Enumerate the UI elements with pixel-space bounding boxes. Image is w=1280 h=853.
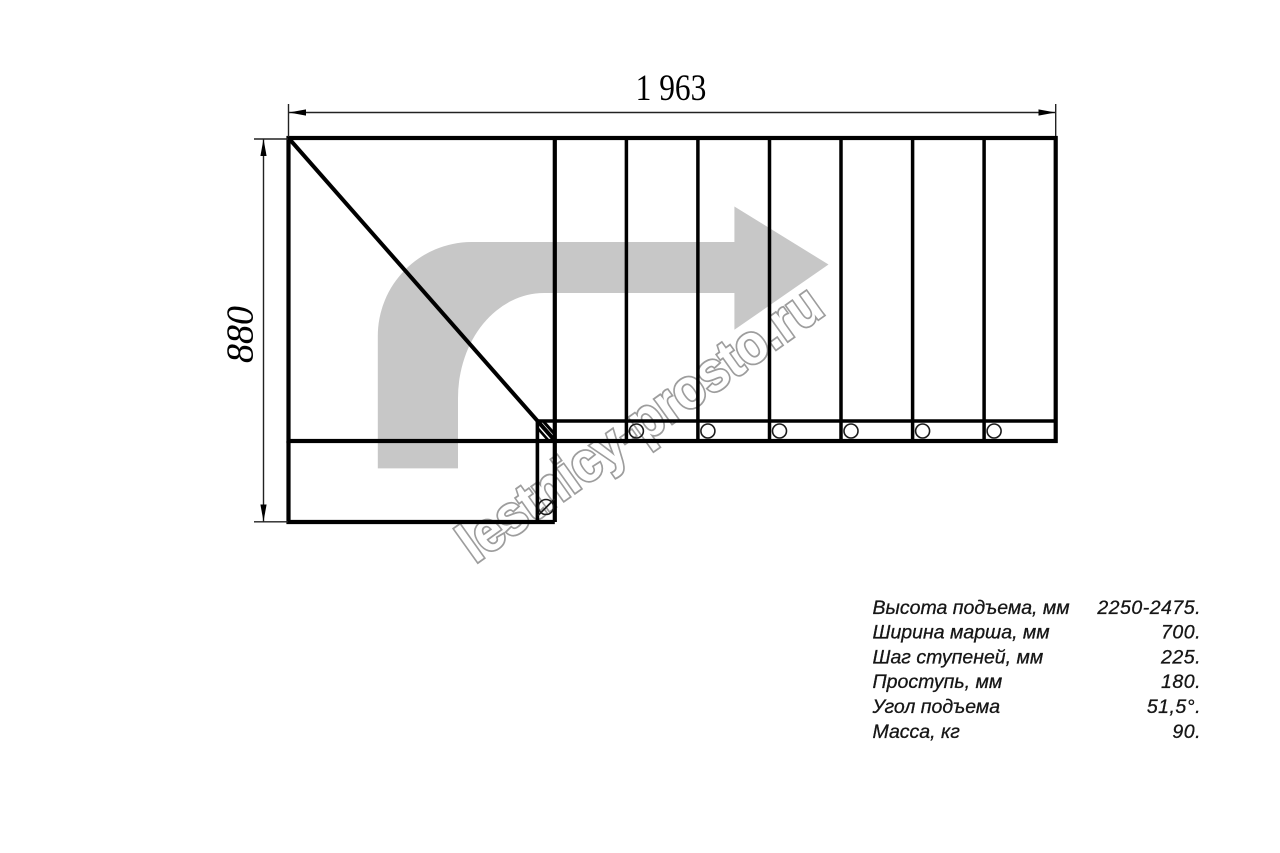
svg-text:700.: 700.	[1161, 622, 1201, 644]
svg-text:880: 880	[220, 306, 262, 363]
svg-text:51,5°.: 51,5°.	[1147, 696, 1201, 718]
svg-text:90.: 90.	[1172, 721, 1201, 743]
svg-text:lestnicy-prosto.ru: lestnicy-prosto.ru	[446, 272, 834, 574]
svg-text:180.: 180.	[1161, 671, 1201, 693]
svg-text:Ширина марша, мм: Ширина марша, мм	[873, 622, 1050, 644]
svg-text:Масса, кг: Масса, кг	[873, 721, 961, 743]
svg-text:2250-2475.: 2250-2475.	[1096, 597, 1201, 619]
svg-text:Шаг ступеней, мм: Шаг ступеней, мм	[873, 646, 1044, 668]
svg-text:Угол подъема: Угол подъема	[872, 696, 1001, 718]
svg-text:1 963: 1 963	[636, 68, 707, 109]
svg-text:225.: 225.	[1160, 646, 1201, 668]
svg-text:Высота подъема, мм: Высота подъема, мм	[873, 597, 1070, 619]
svg-text:Проступь, мм: Проступь, мм	[873, 671, 1003, 693]
